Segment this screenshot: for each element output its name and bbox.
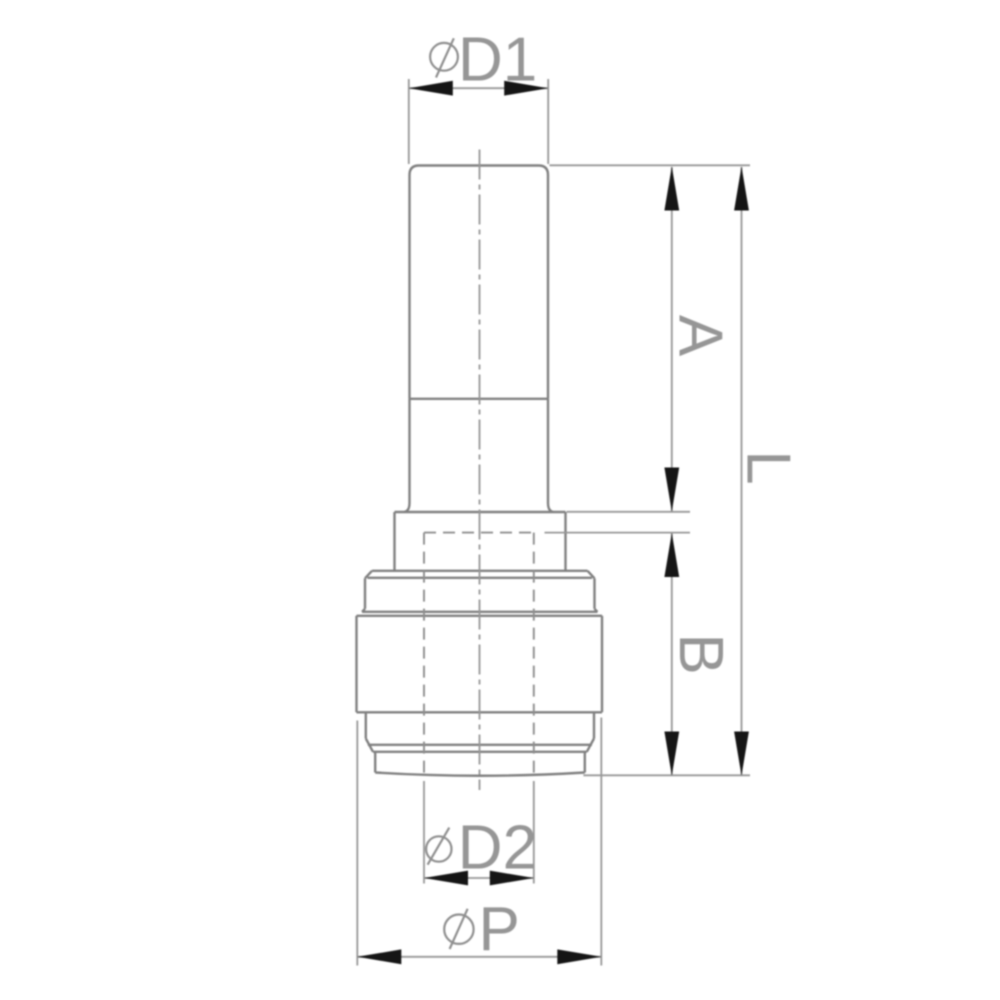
svg-text:D1: D1: [458, 26, 537, 95]
svg-text:B: B: [666, 633, 735, 674]
svg-text:P: P: [479, 895, 520, 964]
svg-text:L: L: [734, 450, 803, 484]
svg-text:D2: D2: [458, 814, 537, 883]
svg-text:A: A: [666, 315, 735, 357]
